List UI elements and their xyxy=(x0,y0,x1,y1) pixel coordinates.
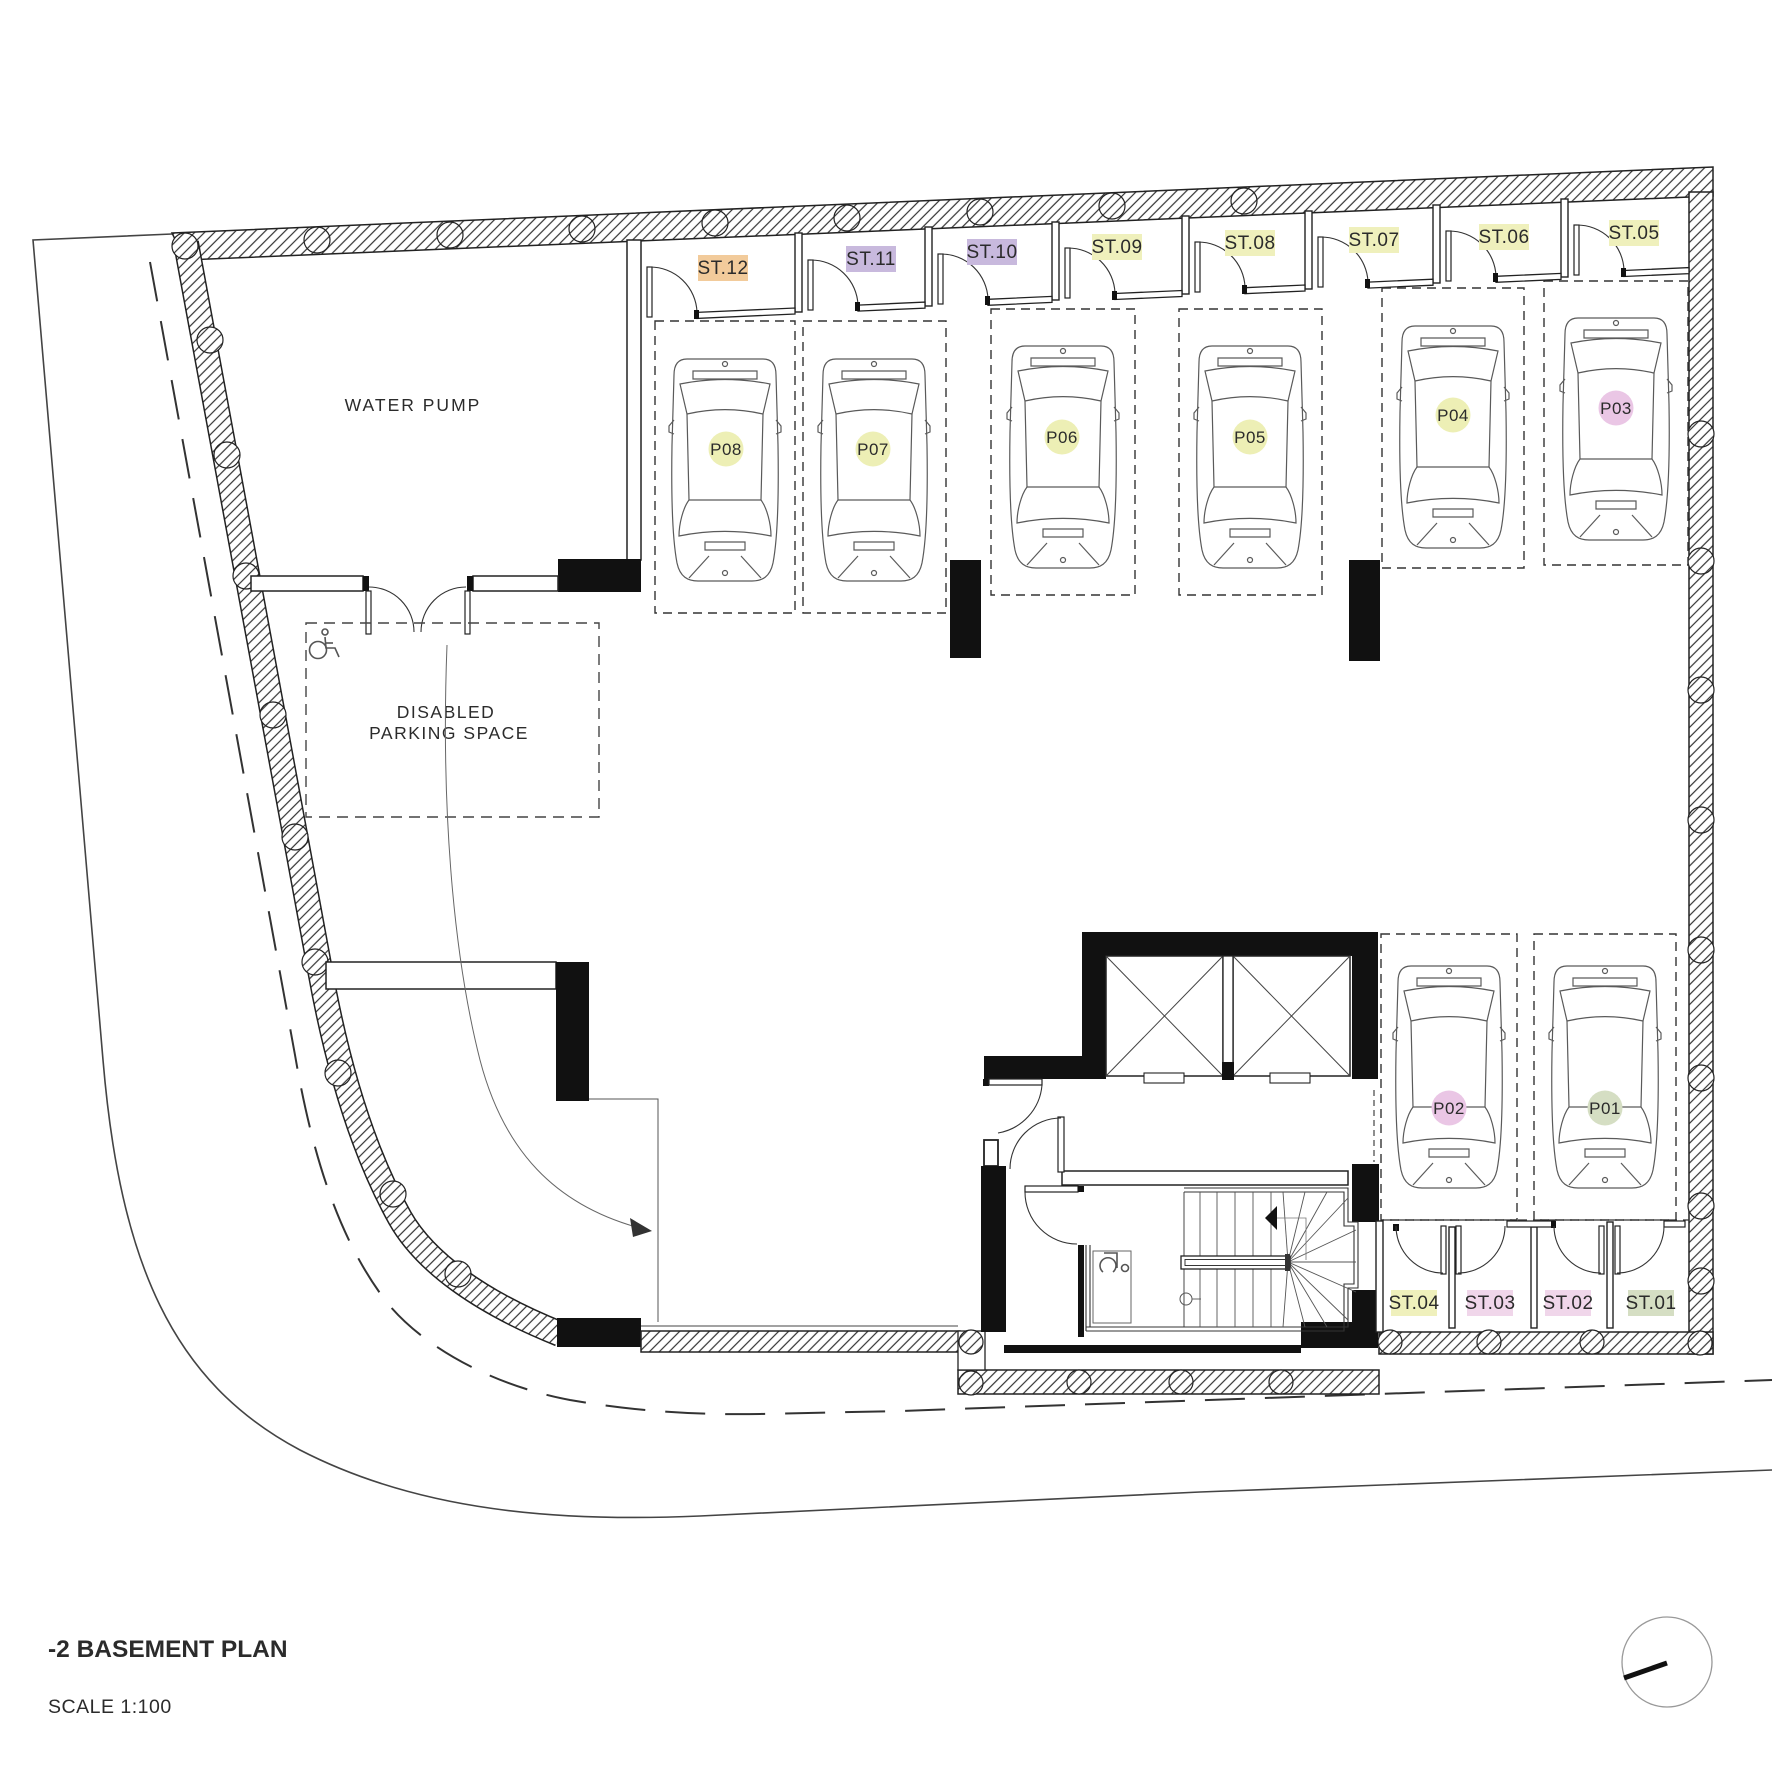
svg-text:P08: P08 xyxy=(710,440,742,459)
svg-text:ST.11: ST.11 xyxy=(846,249,896,270)
svg-text:P06: P06 xyxy=(1046,428,1078,447)
svg-text:ST.05: ST.05 xyxy=(1608,223,1659,244)
svg-text:P04: P04 xyxy=(1437,406,1469,425)
svg-text:ST.09: ST.09 xyxy=(1091,237,1142,258)
svg-text:ST.10: ST.10 xyxy=(966,242,1017,263)
svg-text:WATER PUMP: WATER PUMP xyxy=(345,395,482,415)
svg-text:P07: P07 xyxy=(857,440,889,459)
svg-text:P02: P02 xyxy=(1433,1099,1465,1118)
svg-text:PARKING SPACE: PARKING SPACE xyxy=(369,723,529,743)
svg-text:-2 BASEMENT PLAN: -2 BASEMENT PLAN xyxy=(48,1636,288,1663)
svg-text:ST.08: ST.08 xyxy=(1224,233,1275,254)
svg-text:SCALE 1:100: SCALE 1:100 xyxy=(48,1696,172,1718)
svg-text:ST.12: ST.12 xyxy=(697,258,748,279)
svg-text:ST.01: ST.01 xyxy=(1625,1293,1676,1314)
svg-text:ST.06: ST.06 xyxy=(1478,227,1529,248)
svg-text:ST.07: ST.07 xyxy=(1348,230,1399,251)
svg-text:ST.04: ST.04 xyxy=(1388,1293,1439,1314)
svg-text:P01: P01 xyxy=(1589,1099,1621,1118)
svg-text:ST.03: ST.03 xyxy=(1464,1293,1515,1314)
svg-text:P05: P05 xyxy=(1234,428,1266,447)
svg-text:ST.02: ST.02 xyxy=(1542,1293,1593,1314)
svg-text:P03: P03 xyxy=(1600,399,1632,418)
